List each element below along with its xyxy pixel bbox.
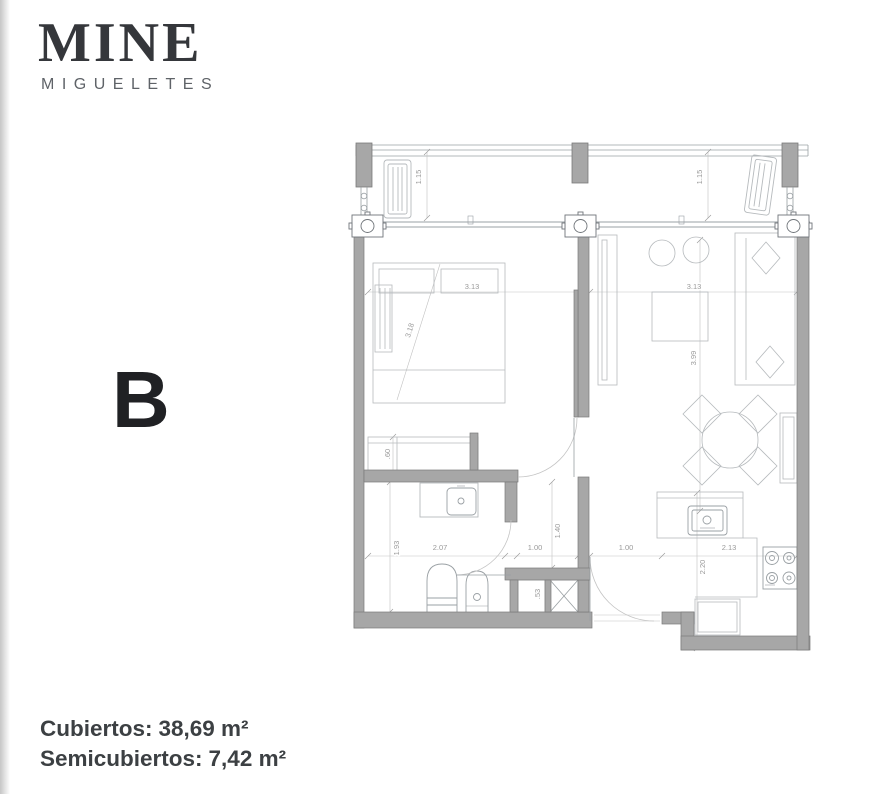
semicovered-area-line: Semicubiertos:7,42 m² [40,744,286,774]
wall-left [354,228,364,628]
bedroom-door [518,418,577,477]
wall-center-jog [574,290,578,417]
wall-center-lower [578,477,589,580]
area-summary: Cubiertos:38,69 m² Semicubiertos:7,42 m² [40,714,286,774]
wall-shaft-mid [545,580,551,612]
tv-console [598,235,617,385]
ac-unit-left [384,160,411,218]
dim-closet-depth: .60 [383,449,392,459]
wall-bath-top [364,470,518,482]
wall-bottom-right [681,636,810,650]
dim-kitchen-height: 2.20 [698,560,707,575]
window-mullions [361,187,793,216]
dim-hall-height: 1.40 [553,524,562,539]
bidet [466,571,488,612]
dim-bedroom-width: 3.13 [465,282,480,291]
wall-center-upper [578,232,589,417]
wall-bath-right [505,482,517,522]
coffee-table [652,292,708,341]
dim-entry-width: 1.00 [619,543,634,552]
sideboard [780,413,797,483]
dim-bedroom-diagonal: 3.18 [403,322,416,339]
dim-living-depth: 3.99 [689,351,698,366]
entry-door [590,557,660,621]
glazing-column-center [562,212,599,237]
radiator [375,285,392,352]
wall-shaft-left [510,580,518,612]
wall-shaft-right [578,580,589,612]
kitchen-sink [688,506,727,535]
dim-hall-width: 1.00 [528,543,543,552]
glazing-column-left [349,212,386,237]
dining-table [683,395,777,485]
bathroom-vanity [420,483,478,517]
cooktop [763,547,797,589]
wall-bottom-left [354,612,592,628]
dimension-labels: 1.15 1.15 3.13 3.13 3.18 3.99 .60 1.93 2… [383,170,736,600]
walls [354,228,810,650]
bed [373,263,505,403]
semicovered-area-label: Semicubiertos: [40,746,203,771]
sofa [735,233,795,385]
dim-shaft-width: .53 [533,589,542,599]
ac-unit-right [744,155,777,216]
semicovered-area-value: 7,42 m² [209,746,287,771]
dim-bath-width: 2.07 [433,543,448,552]
dim-balcony-left: 1.15 [414,170,423,185]
dim-balcony-right: 1.15 [695,170,704,185]
covered-area-value: 38,69 m² [159,716,249,741]
floor-plan: 1.15 1.15 3.13 3.13 3.18 3.99 .60 1.93 2… [0,0,887,794]
glazing-column-right [775,212,812,237]
wall-right [797,228,809,650]
covered-area-line: Cubiertos:38,69 m² [40,714,286,744]
kitchen-cabinet [695,599,740,635]
dim-living-width: 3.13 [687,282,702,291]
covered-area-label: Cubiertos: [40,716,153,741]
bathroom-door [456,520,511,575]
dim-kitchen-width: 2.13 [722,543,737,552]
toilet [427,564,457,612]
wall-closet-stub [470,433,478,470]
wall-shaft-top [505,568,590,580]
dim-bath-height: 1.93 [392,541,401,556]
